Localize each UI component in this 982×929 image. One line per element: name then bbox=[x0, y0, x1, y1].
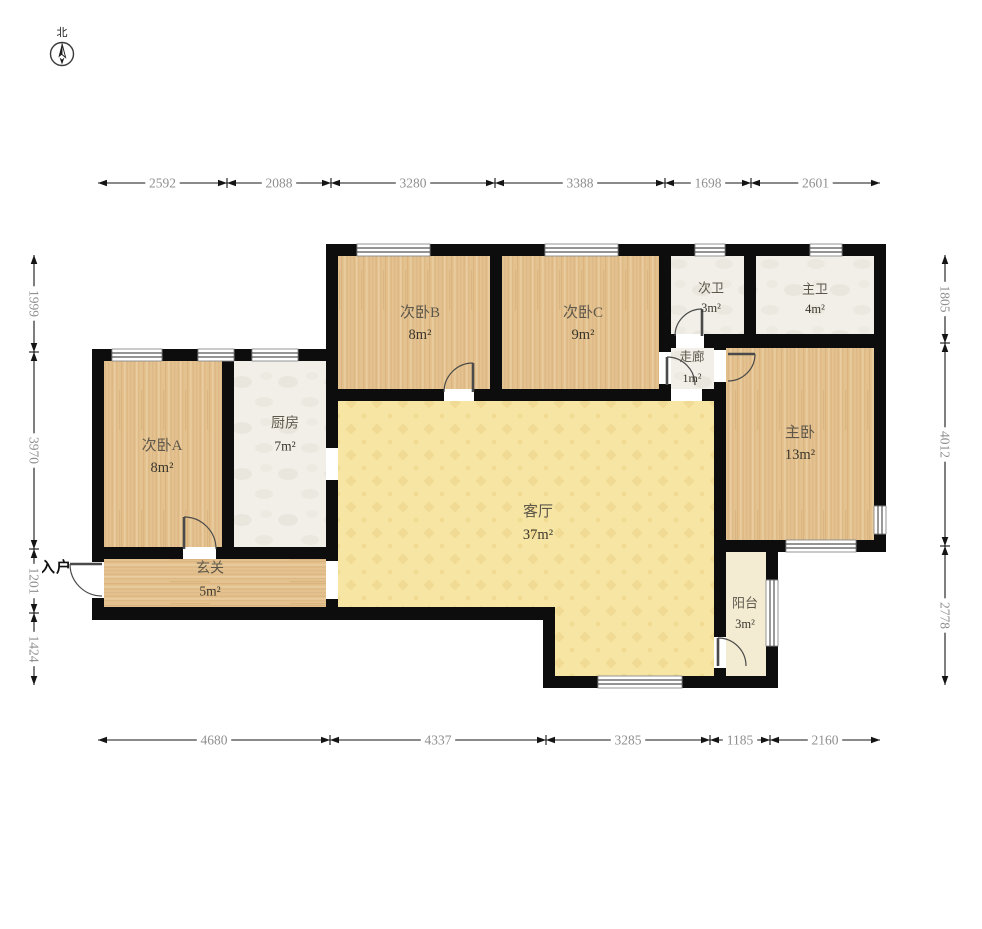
room-bedroom-a-floor bbox=[98, 355, 228, 553]
room-corridor-floor bbox=[665, 340, 720, 395]
window bbox=[786, 540, 856, 552]
dimension-value: 2160 bbox=[812, 733, 839, 748]
dimension-left: 1999397012011424 bbox=[26, 255, 42, 685]
wall-opening bbox=[92, 562, 104, 598]
dimension-value: 3280 bbox=[400, 176, 427, 191]
room-bath-master-name: 主卫 bbox=[802, 282, 828, 297]
room-bath-secondary-name: 次卫 bbox=[698, 281, 724, 296]
room-corridor-area: 1m² bbox=[683, 371, 702, 385]
room-bedroom-a-area: 8m² bbox=[151, 460, 175, 476]
dimension-value: 3388 bbox=[567, 176, 594, 191]
room-balcony-area: 3m² bbox=[735, 617, 755, 631]
room-master-bedroom-name: 主卧 bbox=[785, 424, 815, 441]
room-master-bedroom-floor bbox=[720, 340, 880, 546]
wall bbox=[490, 256, 502, 401]
window bbox=[357, 244, 430, 256]
window bbox=[112, 349, 162, 361]
wall bbox=[222, 361, 234, 559]
window bbox=[874, 506, 886, 534]
dimension-value: 3970 bbox=[27, 437, 42, 464]
room-bedroom-b-area: 8m² bbox=[409, 327, 433, 343]
room-master-bedroom-area: 13m² bbox=[785, 447, 816, 463]
room-kitchen-area: 7m² bbox=[274, 439, 295, 454]
floorplan-canvas: 北 入户 次卧B8m²次卧C9m²次卫3m²主卫4m²走廊1m²主卧13m²次卧… bbox=[0, 0, 982, 929]
wall-opening bbox=[444, 389, 474, 401]
wall-opening bbox=[326, 561, 338, 599]
wall bbox=[104, 547, 338, 559]
window bbox=[810, 244, 842, 256]
dimension-value: 2601 bbox=[802, 176, 829, 191]
floorplan-svg: 次卧B8m²次卧C9m²次卫3m²主卫4m²走廊1m²主卧13m²次卧A8m²厨… bbox=[0, 0, 982, 929]
dimension-value: 1424 bbox=[27, 636, 42, 663]
room-bath-secondary-area: 3m² bbox=[701, 301, 721, 315]
room-balcony-name: 阳台 bbox=[732, 596, 758, 611]
room-entry-hall-name: 玄关 bbox=[196, 560, 224, 577]
dimension-value: 4012 bbox=[938, 431, 953, 458]
room-bedroom-c-floor bbox=[496, 250, 665, 395]
wall-opening bbox=[714, 350, 726, 382]
dimension-right: 180540122778 bbox=[937, 255, 953, 685]
room-kitchen-floor bbox=[228, 355, 332, 553]
room-bedroom-c-area: 9m² bbox=[572, 327, 596, 343]
room-bath-master-area: 4m² bbox=[805, 302, 825, 316]
dimension-value: 1999 bbox=[27, 290, 42, 317]
dimension-value: 2778 bbox=[938, 602, 953, 629]
room-bedroom-a-name: 次卧A bbox=[142, 437, 183, 454]
room-entry-hall-area: 5m² bbox=[199, 584, 220, 599]
wall bbox=[326, 389, 726, 401]
dimension-value: 1698 bbox=[695, 176, 722, 191]
window bbox=[695, 244, 725, 256]
wall bbox=[92, 607, 555, 620]
room-corridor-name: 走廊 bbox=[679, 349, 704, 364]
dimension-value: 4337 bbox=[425, 733, 452, 748]
dimension-value: 1185 bbox=[727, 733, 754, 748]
wall-opening bbox=[714, 637, 726, 668]
dimension-value: 1201 bbox=[27, 568, 42, 595]
dimension-value: 2592 bbox=[149, 176, 176, 191]
window bbox=[545, 244, 618, 256]
window bbox=[766, 580, 778, 646]
window bbox=[252, 349, 298, 361]
dimension-bottom: 46804337328511852160 bbox=[98, 732, 880, 748]
window bbox=[198, 349, 234, 361]
wall bbox=[744, 256, 756, 346]
room-kitchen-name: 厨房 bbox=[271, 416, 299, 432]
dimension-value: 2088 bbox=[266, 176, 293, 191]
dimension-top: 259220883280338816982601 bbox=[98, 175, 880, 191]
room-bedroom-b-floor bbox=[332, 250, 496, 395]
room-bedroom-b-name: 次卧B bbox=[400, 304, 440, 321]
room-living-room-name: 客厅 bbox=[523, 503, 553, 520]
dimension-value: 3285 bbox=[615, 733, 642, 748]
wall-opening bbox=[183, 547, 216, 559]
room-living-room-area: 37m² bbox=[523, 527, 554, 543]
wall-opening bbox=[326, 448, 338, 480]
wall-opening bbox=[676, 334, 704, 348]
dimension-value: 4680 bbox=[201, 733, 228, 748]
window bbox=[598, 676, 682, 688]
dimension-value: 1805 bbox=[938, 286, 953, 313]
room-bedroom-c-name: 次卧C bbox=[563, 304, 603, 321]
wall-opening bbox=[671, 389, 702, 401]
